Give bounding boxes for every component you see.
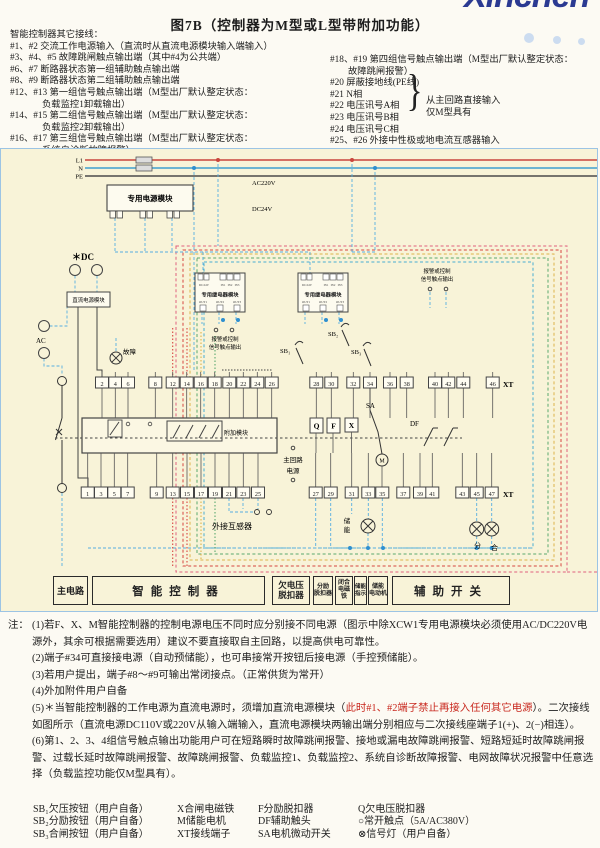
relay-module-label: 专用继电器模块 xyxy=(304,291,342,299)
legend-item: ⊗信号灯（用户自备） xyxy=(358,829,533,841)
brace-note: 仅M型具有 xyxy=(426,108,471,120)
logo-dot xyxy=(578,38,585,45)
legend-item: SB₃合闸按钮（用户自备） xyxy=(33,829,177,841)
ac-label: AC xyxy=(36,337,46,345)
relay-out-label: OUT2 xyxy=(216,300,225,304)
logo-dot xyxy=(553,36,561,44)
relay-dc-label: DC24V xyxy=(199,283,210,287)
xt-terminal-number: 44 xyxy=(460,381,466,388)
legend-item: SA电机微动开关 xyxy=(258,829,358,841)
xt-label: XT xyxy=(503,380,513,389)
legend-item: DF辅助触头 xyxy=(258,816,358,828)
x-label: X xyxy=(349,421,355,430)
xt-terminal-number: 32 xyxy=(350,381,356,388)
note-line: #25、#26 外接中性极或地电流互感器输入 xyxy=(330,136,598,148)
close-label: 合 xyxy=(491,543,498,552)
xt-terminal-number: 13 xyxy=(170,491,176,498)
relay-out-label: OUT3 xyxy=(336,300,345,304)
notes-marker: 注： xyxy=(8,618,32,784)
relay-out-label: OUT2 xyxy=(319,300,328,304)
section-closing-magnet: 闭合 电磁铁 xyxy=(335,576,353,605)
main-circuit-label: 主回路 xyxy=(283,455,303,464)
footnotes: 注： (1)若F、X、M智能控制器的控制电源电压不同时应分别接不同电源（图示中除… xyxy=(8,618,596,784)
note-line: #14、#15 第二组信号触点输出端（M型出厂默认整定状态： xyxy=(10,111,340,123)
open-label: 分 xyxy=(474,541,481,550)
xt-terminal-number: 33 xyxy=(365,491,371,498)
bus-lines: L1 N PE xyxy=(75,157,597,181)
terminal-notes-heading: 智能控制器其它接线： xyxy=(10,30,340,42)
xt-terminal-number: 43 xyxy=(459,491,465,498)
note-line: #12、#13 第一组信号触点输出端（M型出厂默认整定状态： xyxy=(10,88,340,100)
note-1: (1)若F、X、M智能控制器的控制电源电压不同时应分别接不同电源（图示中除XCW… xyxy=(32,618,596,651)
note-5-warning: 此时#1、#2端子禁止再接入任何其它电源 xyxy=(345,703,532,714)
legend-item: ○常开触点（5A/AC380V） xyxy=(358,816,533,828)
breaker-body: 附加模块 xyxy=(55,418,462,453)
fault-lamp: 故障 xyxy=(110,347,137,364)
xt-terminal-number: 23 xyxy=(240,491,246,498)
section-uv-release: 欠电压 脱扣器 xyxy=(272,576,310,605)
xt-label: XT xyxy=(503,490,513,499)
bus-label-n: N xyxy=(78,166,83,173)
xt-terminal-number: 17 xyxy=(198,491,204,498)
legend-item: SB₁欠压按钮（用户自备） xyxy=(33,804,177,816)
add-module-label: 附加模块 xyxy=(224,429,248,437)
manual-page: { "page": { "title": "图7B（控制器为M型或L型带附加功能… xyxy=(0,0,600,848)
alarm-label: 报警或控制 xyxy=(424,267,451,275)
external-ct: 外接互感器 xyxy=(212,510,272,532)
f-label: F xyxy=(331,422,336,431)
xt-terminal-number: 16 xyxy=(198,381,204,388)
ext-ct-label: 外接互感器 xyxy=(212,521,252,531)
ac-input-terminals: AC xyxy=(36,321,50,359)
bus-label-l1: L1 xyxy=(76,158,83,165)
note-2: (2)端子#34可直接接电源（自动预储能），也可串接常开按钮后接电源（手控预储能… xyxy=(32,651,596,668)
control-wiring xyxy=(44,164,533,566)
relay-dc-label: DC24V xyxy=(302,283,313,287)
legend-item: M储能电机 xyxy=(177,816,258,828)
note-4: (4)外加附件用户自备 xyxy=(32,684,596,701)
power-module: AC220V DC24V 专用电源模块 xyxy=(107,180,276,218)
xt-terminal-number: 21 xyxy=(226,491,232,498)
xt-terminal-number: 1 xyxy=(86,491,89,498)
note-line: #6、#7 断路器状态第一组辅助触点输出端 xyxy=(10,65,340,77)
xt-terminal-number: 38 xyxy=(404,381,410,388)
brace-note: 从主回路直接输入 xyxy=(426,96,500,108)
store-label: 能 xyxy=(344,525,351,534)
xt-terminal-number: 35 xyxy=(379,491,385,498)
legend-item: X合闸电磁铁 xyxy=(177,804,258,816)
xt-terminal-number: 18 xyxy=(212,381,218,388)
legend-item: Q欠电压脱扣器 xyxy=(358,804,533,816)
sb3-label: SB₃ xyxy=(351,349,361,356)
xt-terminal-number: 2 xyxy=(100,381,103,388)
note-line: #20 屏蔽接地线(PE线) xyxy=(330,78,598,90)
xt-terminal-number: 20 xyxy=(226,381,232,388)
relay-out-label: OUT1 xyxy=(199,300,208,304)
relay-in-label: IN3 xyxy=(235,283,240,287)
wiring-diagram: L1 N PE xyxy=(0,148,600,613)
relay-in-label: IN1 xyxy=(324,283,329,287)
xt-terminal-number: 42 xyxy=(445,381,451,388)
legend-item: XT接线端子 xyxy=(177,829,258,841)
note-line: #1、#2 交流工作电源输入（直流时从直流电源模块输入端输入） xyxy=(10,42,340,54)
xt-terminal-number: 30 xyxy=(328,381,334,388)
relay-out-label: OUT1 xyxy=(302,300,311,304)
brace-glyph: } xyxy=(407,85,423,97)
relay-in-label: IN1 xyxy=(221,283,226,287)
bus-label-pe: PE xyxy=(75,174,83,181)
terminal-notes-right: #18、#19 第四组信号触点输出端（M型出厂默认整定状态： 故障跳闸报警） #… xyxy=(330,55,598,148)
section-controller: 智能控制器 xyxy=(92,576,265,605)
sb2-label: SB₂ xyxy=(328,331,338,338)
q-label: Q xyxy=(314,422,320,431)
note-line: #24 电压讯号C相 xyxy=(330,125,598,137)
note-5-text: (5)＊当智能控制器的工作电源为直流电源时，须增加直流电源模块（ xyxy=(32,703,345,714)
ac220v-label: AC220V xyxy=(252,180,276,187)
section-store-motor: 储能 电动机 xyxy=(368,576,388,605)
xt-terminal-number: 27 xyxy=(313,491,319,498)
note-line: #18、#19 第四组信号触点输出端（M型出厂默认整定状态： xyxy=(330,55,598,67)
brand-logo: Xinchen xyxy=(462,0,600,16)
motor-label: M xyxy=(379,459,385,465)
note-line: #3、#4、#5 故障跳闸触点输出端（其中#4为公共端） xyxy=(10,53,340,65)
xt-terminal-number: 15 xyxy=(184,491,190,498)
df-label: DF xyxy=(410,420,419,428)
xt-terminal-number: 7 xyxy=(126,491,129,498)
alarm-label: 报警或控制 xyxy=(212,335,239,343)
xt-terminal-number: 34 xyxy=(367,381,373,388)
section-main-circuit: 主电路 xyxy=(53,576,88,605)
dc-module-label: 直流电源模块 xyxy=(72,296,105,304)
xt-terminal-number: 36 xyxy=(387,381,393,388)
xt-terminal-number: 6 xyxy=(126,381,129,388)
xt-terminal-number: 22 xyxy=(240,381,246,388)
alarm-label: 信号触点输出 xyxy=(209,343,241,351)
xt-terminal-number: 3 xyxy=(99,491,102,498)
xt-terminal-number: 24 xyxy=(254,381,260,388)
note-6: (6)第1、2、3、4组信号触点输出功能用户可在短路瞬时故障跳闸报警、接地或漏电… xyxy=(32,734,596,784)
relay-module-label: 专用继电器模块 xyxy=(201,291,239,299)
accessories: Q F X SA M DF 主回路 电源 xyxy=(283,388,458,487)
note-line: #16、#17 第三组信号触点输出端（M型出厂默认整定状态： xyxy=(10,134,340,146)
xt-terminal-number: 47 xyxy=(489,491,495,498)
note-line: 负载监控2卸载输出） xyxy=(10,123,340,135)
fuse xyxy=(136,165,152,171)
section-shunt-release: 分励 脱扣器 xyxy=(313,576,333,605)
dc24v-label: DC24V xyxy=(252,206,273,213)
main-circuit-label: 电源 xyxy=(287,466,301,475)
note-line: #8、#9 断路器状态第二组辅助触点输出端 xyxy=(10,76,340,88)
symbol-legend: SB₁欠压按钮（用户自备） X合闸电磁铁 F分励脱扣器 Q欠电压脱扣器 SB₂分… xyxy=(33,804,533,841)
relay-in-label: IN3 xyxy=(338,283,343,287)
xt-terminal-number: 37 xyxy=(400,491,406,498)
xt-terminal-number: 41 xyxy=(429,491,435,498)
xt-terminal-number: 14 xyxy=(184,381,190,388)
xt-terminal-number: 5 xyxy=(113,491,116,498)
xt-terminal-number: 31 xyxy=(349,491,355,498)
xt-terminal-number: 8 xyxy=(154,381,157,388)
relay-in-label: IN2 xyxy=(228,283,233,287)
store-label: 储 xyxy=(344,516,351,525)
section-store-indicator: 储能 指示 xyxy=(354,576,367,605)
section-aux-switch: 辅助开关 xyxy=(392,576,510,605)
xt-terminal-number: 25 xyxy=(255,491,261,498)
note-3: (3)若用户提出，端子#8～#9可输出常闭接点。（正常供货为常开） xyxy=(32,668,596,685)
xt-terminal-number: 29 xyxy=(328,491,334,498)
fault-label: 故障 xyxy=(123,347,137,356)
xt-terminal-number: 40 xyxy=(432,381,438,388)
xt-terminal-number: 4 xyxy=(114,381,117,388)
legend-item: F分励脱扣器 xyxy=(258,804,358,816)
xt-terminal-number: 45 xyxy=(474,491,480,498)
alarm-label: 信号触点输出 xyxy=(421,275,453,283)
xt-terminal-number: 46 xyxy=(490,381,496,388)
logo-dot xyxy=(524,33,534,43)
note-line: 负载监控1卸载输出） xyxy=(10,100,340,112)
xt-terminal-number: 9 xyxy=(155,491,158,498)
disconnect-switch xyxy=(56,377,67,493)
legend-item: SB₂分励按钮（用户自备） xyxy=(33,816,177,828)
fuse xyxy=(136,157,152,163)
sb1-label: SB₁ xyxy=(280,348,290,355)
power-module-label: 专用电源模块 xyxy=(128,193,173,203)
xt-terminal-number: 19 xyxy=(212,491,218,498)
relay-in-label: IN2 xyxy=(331,283,336,287)
note-line: 故障跳闸报警） xyxy=(330,67,598,79)
pushbuttons: SB₁ SB₂ SB₃ xyxy=(280,323,371,366)
xt-terminal-number: 26 xyxy=(269,381,275,388)
xt-terminal-number: 12 xyxy=(170,381,176,388)
relay-out-label: OUT3 xyxy=(233,300,242,304)
terminal-notes-left: 智能控制器其它接线： #1、#2 交流工作电源输入（直流时从直流电源模块输入端输… xyxy=(10,30,340,158)
xt-terminal-number: 39 xyxy=(417,491,423,498)
xt-terminal-number: 28 xyxy=(313,381,319,388)
note-5: (5)＊当智能控制器的工作电源为直流电源时，须增加直流电源模块（此时#1、#2端… xyxy=(32,701,596,734)
dc-star-label: ＊DC xyxy=(72,252,94,262)
